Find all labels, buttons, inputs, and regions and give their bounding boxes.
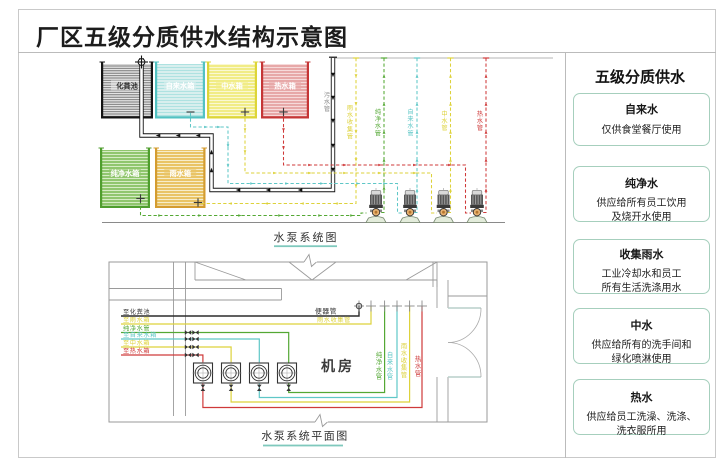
svg-text:雨水箱: 雨水箱 — [169, 169, 191, 178]
svg-text:自来水箱: 自来水箱 — [166, 82, 195, 91]
svg-text:管: 管 — [387, 372, 393, 381]
svg-text:管: 管 — [347, 132, 353, 140]
svg-text:纯: 纯 — [376, 350, 383, 359]
svg-text:净: 净 — [375, 115, 381, 123]
svg-text:水: 水 — [375, 122, 382, 130]
svg-text:管: 管 — [407, 129, 413, 137]
svg-text:雨水收集管: 雨水收集管 — [317, 316, 351, 324]
svg-text:热水箱: 热水箱 — [274, 82, 296, 91]
svg-text:水: 水 — [415, 361, 422, 370]
svg-text:来: 来 — [407, 116, 413, 123]
svg-text:热: 热 — [477, 110, 484, 118]
svg-text:管: 管 — [477, 124, 483, 132]
svg-text:集: 集 — [401, 363, 408, 372]
svg-text:污: 污 — [324, 91, 330, 99]
svg-text:管: 管 — [324, 105, 330, 113]
svg-text:来: 来 — [387, 358, 394, 366]
svg-text:至雨水箱: 至雨水箱 — [123, 316, 150, 324]
svg-text:自: 自 — [407, 108, 413, 116]
svg-text:水: 水 — [441, 117, 448, 125]
svg-text:净: 净 — [376, 357, 383, 366]
svg-text:管: 管 — [441, 124, 447, 132]
svg-text:热: 热 — [415, 354, 422, 363]
svg-text:管: 管 — [401, 370, 407, 379]
svg-text:水: 水 — [477, 117, 484, 125]
svg-text:中: 中 — [441, 110, 447, 118]
svg-text:管: 管 — [376, 372, 382, 381]
svg-text:至热水箱: 至热水箱 — [123, 347, 150, 355]
svg-text:中水箱: 中水箱 — [221, 82, 243, 91]
svg-text:至自来水箱: 至自来水箱 — [123, 331, 157, 339]
svg-text:水: 水 — [407, 122, 414, 130]
svg-text:水: 水 — [347, 111, 354, 119]
svg-text:纯净水箱: 纯净水箱 — [111, 169, 140, 178]
svg-text:至化粪池: 至化粪池 — [123, 308, 150, 316]
svg-text:管: 管 — [375, 129, 381, 137]
svg-text:水泵系统平面图: 水泵系统平面图 — [261, 430, 349, 443]
svg-text:水: 水 — [387, 364, 394, 373]
svg-text:收: 收 — [347, 118, 353, 126]
svg-text:雨: 雨 — [347, 105, 353, 112]
svg-text:管: 管 — [415, 368, 421, 377]
svg-text:便器管: 便器管 — [315, 307, 337, 316]
svg-text:至中水箱: 至中水箱 — [123, 339, 150, 347]
svg-text:水: 水 — [376, 364, 383, 373]
svg-text:水: 水 — [401, 348, 408, 357]
svg-text:收: 收 — [401, 355, 408, 364]
svg-text:雨: 雨 — [401, 342, 407, 350]
svg-text:化粪池: 化粪池 — [116, 82, 138, 91]
svg-text:水: 水 — [324, 98, 331, 106]
svg-text:纯: 纯 — [375, 108, 381, 116]
svg-text:自: 自 — [387, 350, 393, 359]
svg-text:集: 集 — [347, 125, 353, 133]
svg-text:水泵系统图: 水泵系统图 — [274, 231, 339, 244]
svg-text:机房: 机房 — [321, 358, 355, 374]
